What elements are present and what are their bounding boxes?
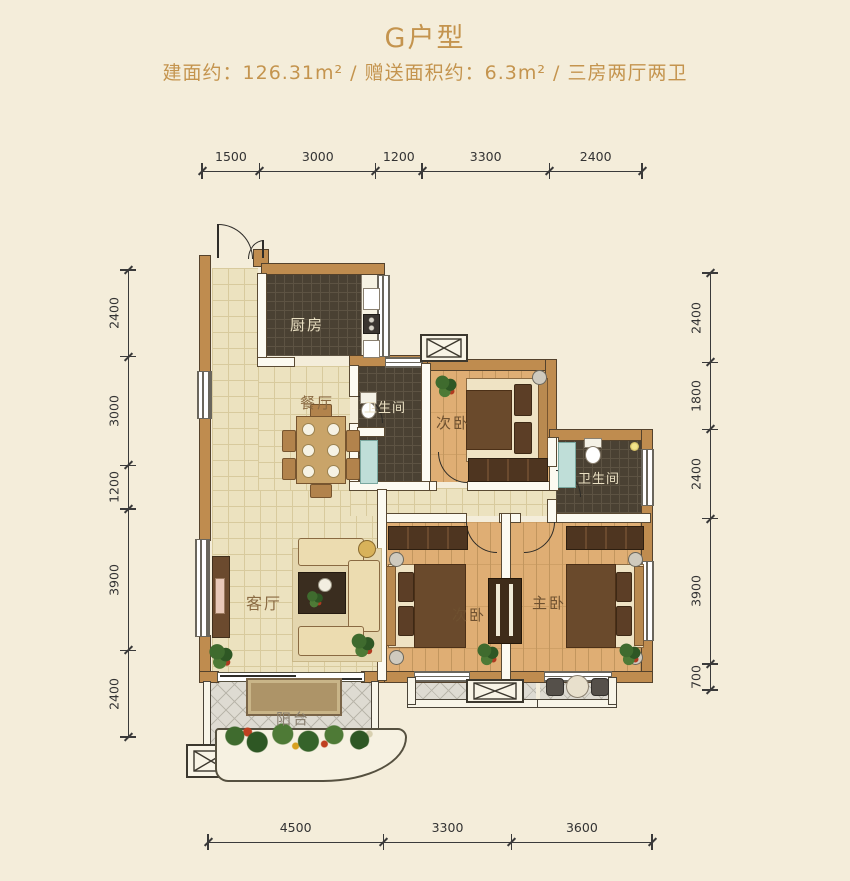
bedroom-bottom-headboard xyxy=(386,566,396,646)
bath2-label: 卫生间 xyxy=(578,468,620,487)
bath2-toilet-bowl xyxy=(585,446,601,464)
small-balcony2-right xyxy=(609,678,616,704)
bedroom-top-label: 次卧 xyxy=(436,412,470,433)
dining-chair-right2 xyxy=(346,458,360,480)
window-dining-left xyxy=(198,372,211,418)
bedroom-top-wardrobe xyxy=(468,458,548,482)
wall-living-bottom-left xyxy=(200,672,218,682)
floor-plan: 厨房 餐厅 卫生间 次卧 卫生间 客厅 次卧 主卧 阳台 xyxy=(0,0,850,881)
wall-bath1-left-a xyxy=(350,366,358,396)
bedroom-bottom-pillow1 xyxy=(398,572,414,602)
master-pillow1 xyxy=(616,572,632,602)
bedroom-bottom-wardrobe xyxy=(388,526,468,550)
bedroom-top-pillow1 xyxy=(514,384,532,416)
wall-kitchen-top xyxy=(262,264,384,274)
bedroom-bottom-sconce2 xyxy=(389,650,404,665)
left-wall-plant xyxy=(208,642,234,670)
balcony2-stool1 xyxy=(546,678,564,696)
wall-bath2-left-a xyxy=(548,438,556,466)
dining-chair-left1 xyxy=(282,430,296,452)
bath2-ceiling-light xyxy=(630,442,639,451)
bath1-shower xyxy=(360,440,378,484)
kitchen-sink xyxy=(363,288,380,310)
tv-screen xyxy=(215,578,225,614)
wall-kitchen-bottom-stub xyxy=(258,358,294,366)
entry-door-arc-small xyxy=(248,240,264,259)
living-plant xyxy=(350,632,376,658)
window-bedroom-bottom xyxy=(415,672,469,681)
bedroom-bottom-sconce1 xyxy=(389,552,404,567)
window-bath1-top xyxy=(386,358,422,367)
flue-shaft-symbol-balcony xyxy=(466,679,524,703)
bedroom-bottom-plant xyxy=(476,642,500,666)
master-plant xyxy=(618,642,642,666)
floor-lamp xyxy=(358,540,376,558)
hall-floor xyxy=(212,268,258,490)
balcony-label: 阳台 xyxy=(276,708,310,729)
bedroom-top-sconce1 xyxy=(532,370,547,385)
master-blanket xyxy=(566,564,616,648)
kitchen-stove xyxy=(363,314,380,334)
wall-corridor-a xyxy=(378,514,466,522)
wall-bath2-left-b xyxy=(548,500,556,522)
bedroom-top-plant xyxy=(434,374,458,398)
bath1-label: 卫生间 xyxy=(364,397,406,416)
master-headboard xyxy=(634,566,644,646)
wall-bedroom-top-bottom-a xyxy=(430,482,436,490)
wall-bedroom-top-bottom-b xyxy=(468,482,554,490)
master-pillow2 xyxy=(616,606,632,636)
small-balcony2-bottom xyxy=(538,700,616,707)
wall-bath1-right xyxy=(422,364,430,490)
wall-bath1-stub xyxy=(358,428,384,436)
wall-kitchen-left xyxy=(258,274,266,366)
bedroom-top-pillow2 xyxy=(514,422,532,454)
dining-label: 餐厅 xyxy=(300,392,334,413)
master-label: 主卧 xyxy=(532,592,566,613)
flue-shaft-symbol-top xyxy=(420,334,468,362)
living-label: 客厅 xyxy=(246,590,282,614)
floorplan-page: G户型 建面约：126.31m² / 赠送面积约：6.3m² / 三房两厅两卫 … xyxy=(0,0,850,881)
bedroom-bottom-label: 次卧 xyxy=(452,604,486,625)
master-sconce1 xyxy=(628,552,643,567)
dining-chair-bottom xyxy=(310,484,332,498)
sofa-right xyxy=(348,560,380,632)
master-wardrobe xyxy=(566,526,644,550)
dining-chair-right1 xyxy=(346,430,360,452)
window-living-left xyxy=(196,540,209,636)
dining-table xyxy=(296,416,346,484)
coffee-table-flowers xyxy=(306,590,324,608)
bath2-shower xyxy=(558,442,576,488)
balcony2-table xyxy=(566,675,589,698)
window-bath2-right xyxy=(642,450,653,505)
bedroom-bottom-pillow2 xyxy=(398,606,414,636)
balcony2-stool2 xyxy=(591,678,609,696)
balcony-sliding-door-rail1 xyxy=(220,675,296,677)
bedroom-top-headboard xyxy=(538,378,548,462)
dining-chair-left2 xyxy=(282,458,296,480)
balcony-left-wall xyxy=(204,682,210,746)
kitchen-cabinet xyxy=(363,340,380,358)
between-bedrooms-closet xyxy=(488,578,522,644)
wall-corridor-c xyxy=(554,514,650,522)
small-balcony1-left xyxy=(408,678,415,704)
bedroom-top-blanket xyxy=(466,390,512,450)
kitchen-label: 厨房 xyxy=(290,314,324,335)
